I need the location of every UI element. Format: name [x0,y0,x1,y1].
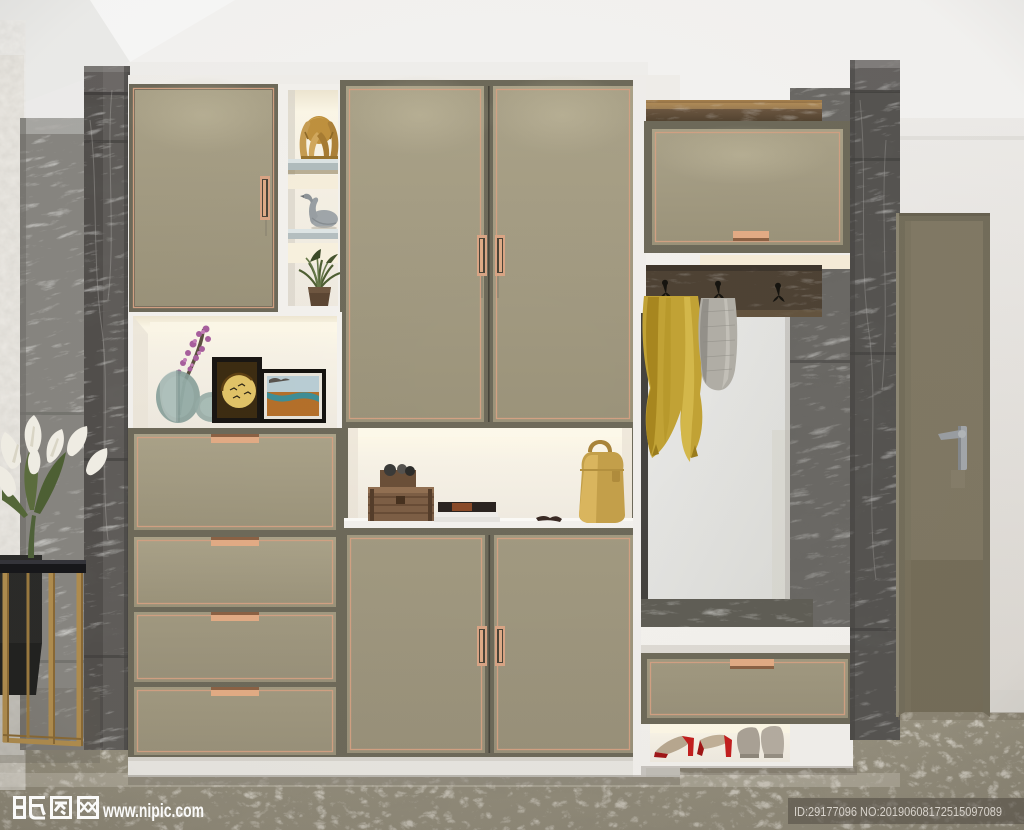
svg-text:ID:29177096 NO:201906081725150: ID:29177096 NO:20190608172515097089 [794,805,1002,819]
svg-text:www.nipic.com: www.nipic.com [102,801,204,822]
